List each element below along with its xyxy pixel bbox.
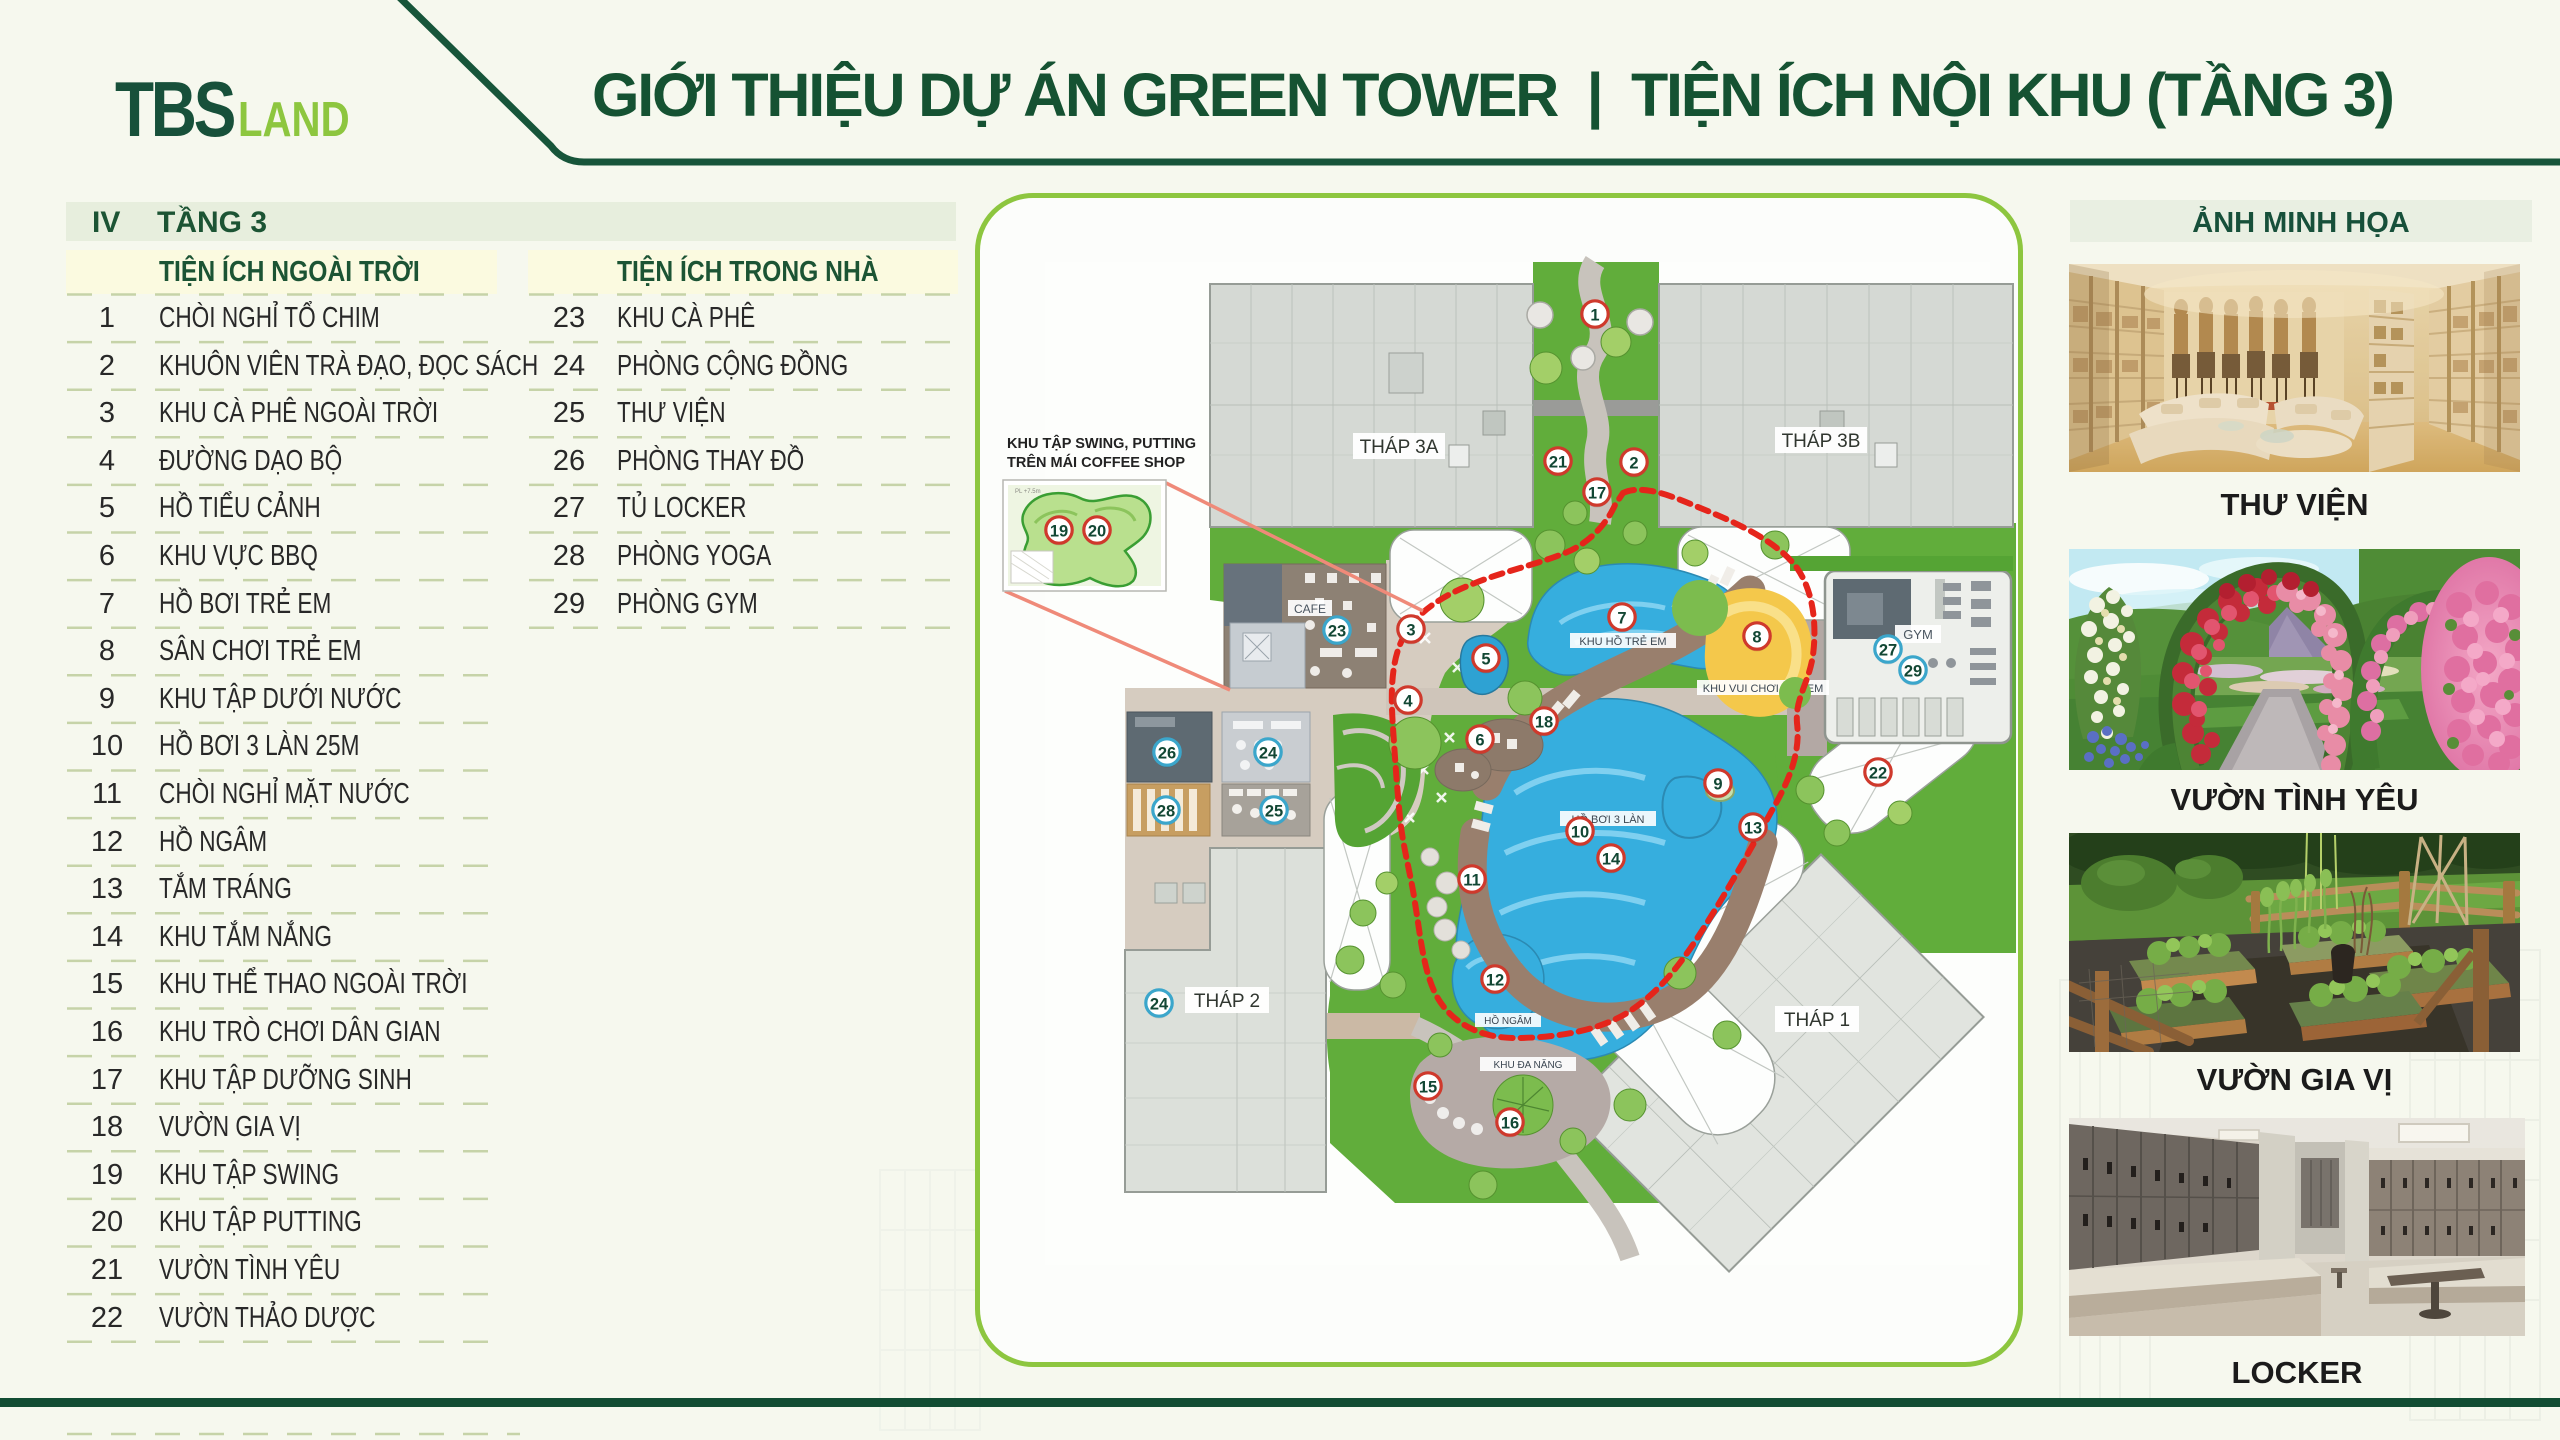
- svg-text:KHU ĐA NĂNG: KHU ĐA NĂNG: [1494, 1058, 1563, 1071]
- svg-text:HỒ NGÂM: HỒ NGÂM: [1484, 1014, 1532, 1027]
- svg-text:THÁP 1: THÁP 1: [1784, 1010, 1850, 1031]
- svg-text:19: 19: [1050, 523, 1068, 541]
- svg-text:16: 16: [1501, 1115, 1519, 1133]
- svg-text:17: 17: [1588, 485, 1606, 503]
- svg-text:14: 14: [1602, 851, 1621, 869]
- svg-text:12: 12: [1486, 972, 1504, 990]
- svg-text:18: 18: [1535, 714, 1553, 732]
- svg-text:KHU TẬP SWING, PUTTING: KHU TẬP SWING, PUTTING: [1007, 434, 1196, 452]
- svg-text:10: 10: [1571, 824, 1589, 842]
- svg-text:11: 11: [1463, 872, 1480, 890]
- svg-text:15: 15: [1419, 1079, 1437, 1097]
- svg-text:TRÊN MÁI COFFEE SHOP: TRÊN MÁI COFFEE SHOP: [1007, 453, 1185, 471]
- svg-text:CAFE: CAFE: [1294, 602, 1326, 616]
- svg-text:13: 13: [1744, 820, 1762, 838]
- svg-text:2: 2: [1629, 455, 1638, 473]
- svg-text:8: 8: [1752, 629, 1761, 647]
- svg-text:23: 23: [1328, 623, 1346, 641]
- svg-text:24: 24: [1150, 996, 1169, 1014]
- svg-text:PL +7.5m: PL +7.5m: [1015, 489, 1041, 495]
- svg-text:KHU HỒ TRẺ EM: KHU HỒ TRẺ EM: [1579, 635, 1666, 648]
- svg-text:THÁP 2: THÁP 2: [1194, 991, 1260, 1012]
- svg-text:THÁP 3A: THÁP 3A: [1360, 437, 1439, 458]
- svg-text:20: 20: [1088, 523, 1106, 541]
- svg-text:29: 29: [1904, 663, 1922, 681]
- svg-text:24: 24: [1259, 745, 1278, 763]
- svg-text:9: 9: [1713, 776, 1722, 794]
- svg-text:28: 28: [1157, 803, 1175, 821]
- svg-text:25: 25: [1265, 803, 1283, 821]
- svg-text:26: 26: [1158, 745, 1176, 763]
- svg-text:GYM: GYM: [1903, 627, 1933, 642]
- svg-text:THÁP 3B: THÁP 3B: [1782, 431, 1861, 452]
- svg-text:5: 5: [1481, 651, 1490, 669]
- svg-text:6: 6: [1475, 732, 1484, 750]
- svg-text:7: 7: [1617, 610, 1626, 628]
- svg-text:21: 21: [1549, 454, 1567, 472]
- svg-text:4: 4: [1403, 693, 1413, 711]
- svg-text:27: 27: [1879, 642, 1897, 660]
- svg-text:22: 22: [1869, 765, 1887, 783]
- svg-text:3: 3: [1406, 622, 1415, 640]
- svg-text:1: 1: [1590, 307, 1599, 325]
